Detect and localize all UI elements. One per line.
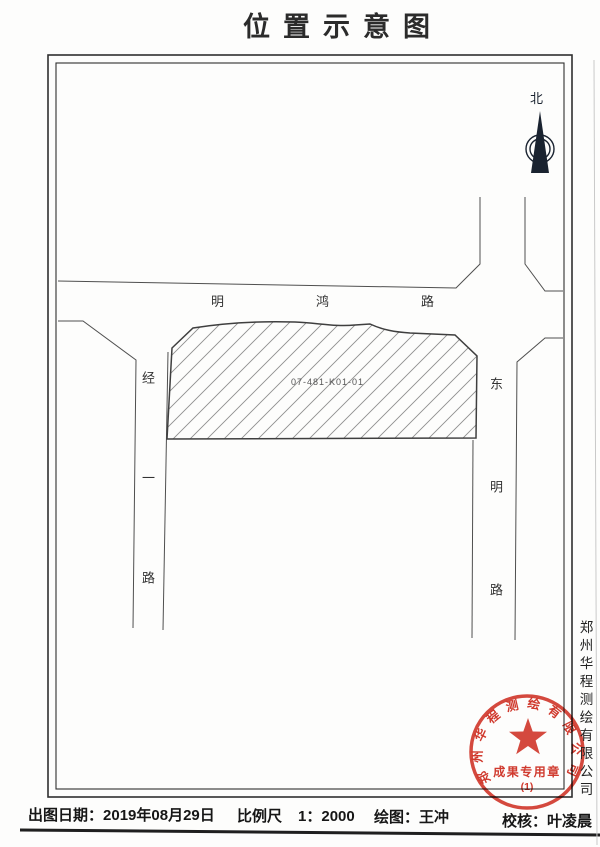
seal-star-icon bbox=[509, 718, 547, 754]
parcel-code-label: 07-481-K01-01 bbox=[291, 378, 364, 387]
footer-drafter-label: 绘图： bbox=[374, 809, 419, 826]
footer-date-value: 2019年08月29日 bbox=[103, 807, 215, 824]
footer-scale-value: 1：2000 bbox=[298, 808, 355, 825]
seal-title-text: 成果专用章 bbox=[493, 764, 561, 779]
footer-drafter-value: 王冲 bbox=[419, 809, 449, 826]
road-edge-top-right bbox=[525, 197, 563, 291]
road-edge-bottom-left bbox=[58, 321, 136, 628]
road-label-dongming: 东明路 bbox=[489, 377, 502, 686]
footer-date: 出图日期：2019年08月29日 bbox=[28, 804, 215, 825]
road-edge-bottom-right bbox=[515, 338, 563, 640]
north-label: 北 bbox=[530, 92, 543, 105]
footer-checker-label: 校核： bbox=[502, 813, 547, 830]
footer-date-label: 出图日期： bbox=[28, 807, 103, 824]
seal-number-text: (1) bbox=[521, 781, 534, 793]
scan-edge-shadow-right bbox=[594, 60, 597, 845]
footer-drafter: 绘图：王冲 bbox=[374, 806, 449, 827]
road-edge-top-left bbox=[58, 197, 480, 288]
footer-checker-value: 叶凌晨 bbox=[547, 813, 592, 830]
company-name-vertical: 郑州华程测绘有限公司 bbox=[578, 620, 592, 800]
footer-checker: 校核：叶凌晨 bbox=[502, 810, 592, 831]
company-seal: 郑州华程测绘有限公司 成果专用章 (1) bbox=[471, 695, 583, 808]
road-label-jingyi: 经一路 bbox=[141, 371, 154, 671]
footer-scale: 比例尺1：2000 bbox=[237, 805, 355, 826]
dongming-road-west-edge bbox=[472, 440, 473, 638]
jingyi-road-east-edge bbox=[163, 352, 168, 630]
map-drawing: 郑州华程测绘有限公司 成果专用章 (1) bbox=[0, 0, 600, 847]
north-arrow-icon bbox=[526, 111, 554, 173]
road-label-minghong: 明鸿路 bbox=[211, 295, 526, 308]
footer-scale-label: 比例尺 bbox=[237, 808, 282, 825]
scanned-page: 位置示意图 bbox=[0, 0, 600, 847]
